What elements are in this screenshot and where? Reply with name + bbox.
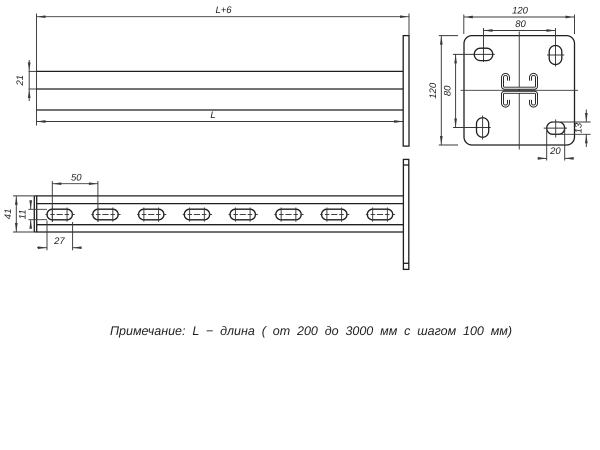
svg-text:50: 50 [71,173,82,184]
svg-text:80: 80 [443,85,454,96]
svg-text:80: 80 [515,19,526,30]
svg-text:L: L [210,110,215,121]
svg-text:11: 11 [17,209,28,219]
svg-text:Примечание: L − длина ( от 200: Примечание: L − длина ( от 200 до 3000 м… [110,324,512,338]
svg-text:120: 120 [512,6,529,17]
svg-text:27: 27 [53,236,65,247]
svg-text:120: 120 [428,82,439,99]
svg-text:41: 41 [3,209,14,220]
svg-text:13: 13 [573,122,584,133]
svg-text:20: 20 [549,146,561,157]
svg-text:L+6: L+6 [215,5,232,16]
svg-text:21: 21 [15,75,26,87]
